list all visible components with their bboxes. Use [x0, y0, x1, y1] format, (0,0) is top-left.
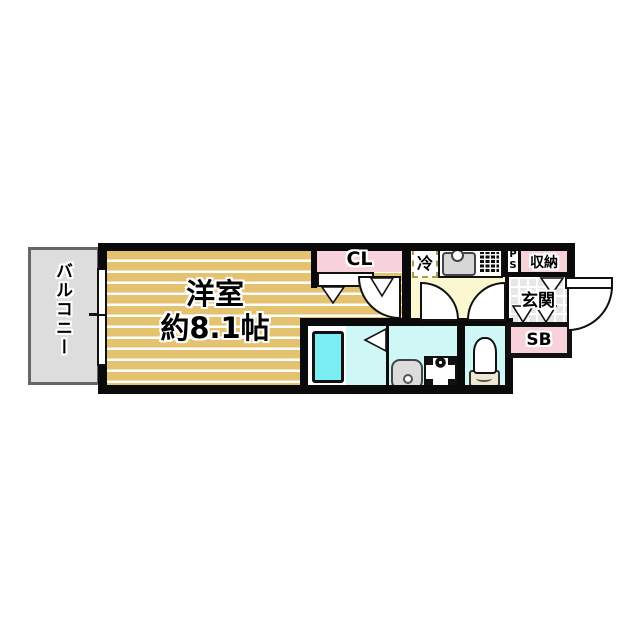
- balcony-label: バルコニー: [50, 262, 75, 372]
- washroom-door-swing: [421, 283, 458, 320]
- front-door-leaf: [566, 278, 612, 288]
- door-symbols: [0, 0, 640, 640]
- room-size: 約8.1帖: [160, 311, 269, 345]
- ps-p: P: [509, 249, 516, 260]
- storage-label: 収納: [521, 252, 567, 272]
- ps-s: S: [509, 260, 516, 271]
- front-door-swing: [568, 286, 612, 330]
- closet-door-triangle: [322, 287, 344, 303]
- room-label: 洋室約8.1帖: [115, 277, 315, 345]
- hall-door-swing: [468, 283, 505, 320]
- floor-plan-canvas: 冷 SB: [0, 0, 640, 640]
- closet-label: CL: [317, 248, 402, 270]
- entrance-label: 玄関: [507, 286, 569, 311]
- pipe-space-label: PS: [506, 249, 520, 271]
- bath-folding-door-triangle: [365, 329, 386, 351]
- room-name: 洋室: [186, 277, 244, 311]
